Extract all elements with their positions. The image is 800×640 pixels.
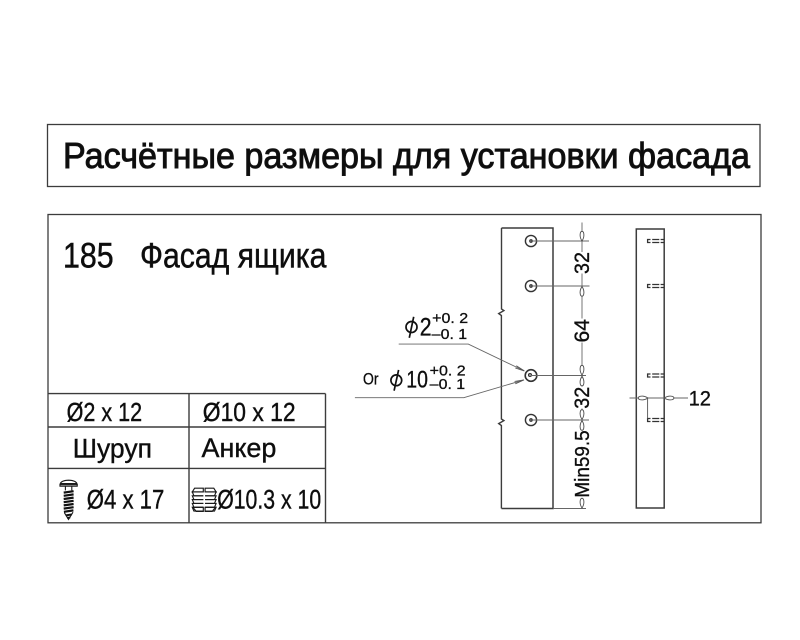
svg-text:Фасад ящика: Фасад ящика [140, 237, 327, 276]
svg-text:10: 10 [406, 367, 428, 394]
svg-text:32: 32 [571, 387, 594, 409]
svg-text:Ø10 x 12: Ø10 x 12 [203, 397, 296, 427]
svg-text:Min59.5: Min59.5 [571, 430, 594, 497]
svg-text:Шуруп: Шуруп [73, 433, 152, 463]
svg-text:Анкер: Анкер [202, 433, 277, 463]
svg-text:Or: Or [363, 369, 379, 388]
svg-text:12: 12 [689, 387, 711, 410]
svg-text:Ø4 x 17: Ø4 x 17 [87, 485, 165, 515]
svg-text:Ø10.3 x 10: Ø10.3 x 10 [217, 485, 321, 515]
svg-text:+0. 2: +0. 2 [432, 311, 468, 327]
svg-text:Расчётные размеры для установк: Расчётные размеры для установки фасада [63, 135, 751, 176]
svg-text:Ø2 x 12: Ø2 x 12 [67, 397, 143, 427]
svg-text:2: 2 [420, 314, 432, 342]
svg-text:–0. 1: –0. 1 [432, 327, 468, 343]
svg-text:64: 64 [571, 319, 594, 343]
svg-text:185: 185 [63, 237, 114, 276]
svg-text:–0. 1: –0. 1 [430, 377, 466, 393]
svg-text:32: 32 [571, 252, 594, 274]
